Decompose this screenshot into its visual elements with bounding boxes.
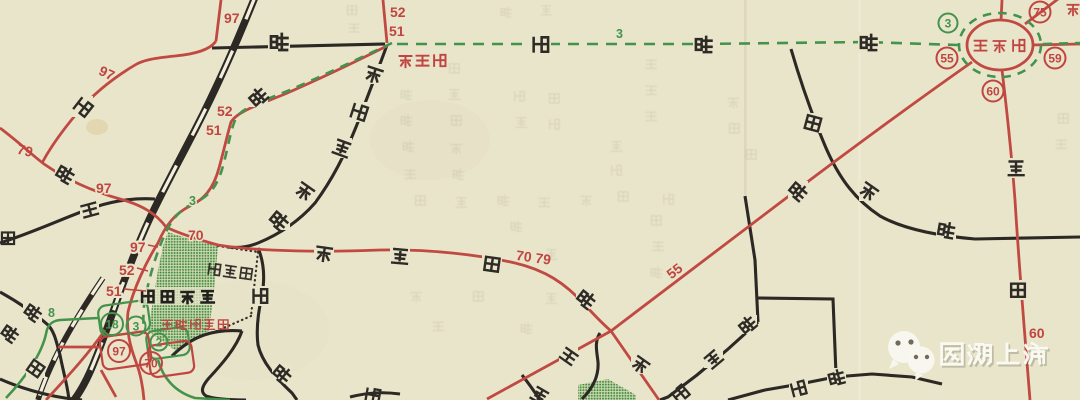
svg-text:59: 59 xyxy=(1048,52,1062,66)
svg-text:51: 51 xyxy=(206,122,222,138)
svg-text:97: 97 xyxy=(96,180,112,196)
svg-text:97: 97 xyxy=(130,239,146,255)
svg-text:55: 55 xyxy=(940,52,954,66)
svg-text:97: 97 xyxy=(224,10,240,26)
svg-text:97: 97 xyxy=(112,345,126,359)
svg-text:8: 8 xyxy=(48,306,55,320)
svg-text:60: 60 xyxy=(1029,325,1045,341)
svg-text:52: 52 xyxy=(390,4,406,20)
svg-text:3: 3 xyxy=(945,17,952,31)
svg-text:51: 51 xyxy=(389,23,405,39)
svg-text:2: 2 xyxy=(156,336,163,350)
svg-text:3: 3 xyxy=(133,320,140,334)
svg-text:52: 52 xyxy=(217,103,233,119)
svg-text:70: 70 xyxy=(188,227,204,243)
svg-text:51: 51 xyxy=(106,283,122,299)
svg-text:18: 18 xyxy=(105,318,119,332)
svg-text:3: 3 xyxy=(616,27,623,41)
svg-text:52: 52 xyxy=(119,262,135,278)
svg-text:3: 3 xyxy=(189,194,196,208)
svg-text:60: 60 xyxy=(986,85,1000,99)
svg-text:75: 75 xyxy=(1033,6,1047,20)
svg-text:70: 70 xyxy=(144,357,158,371)
